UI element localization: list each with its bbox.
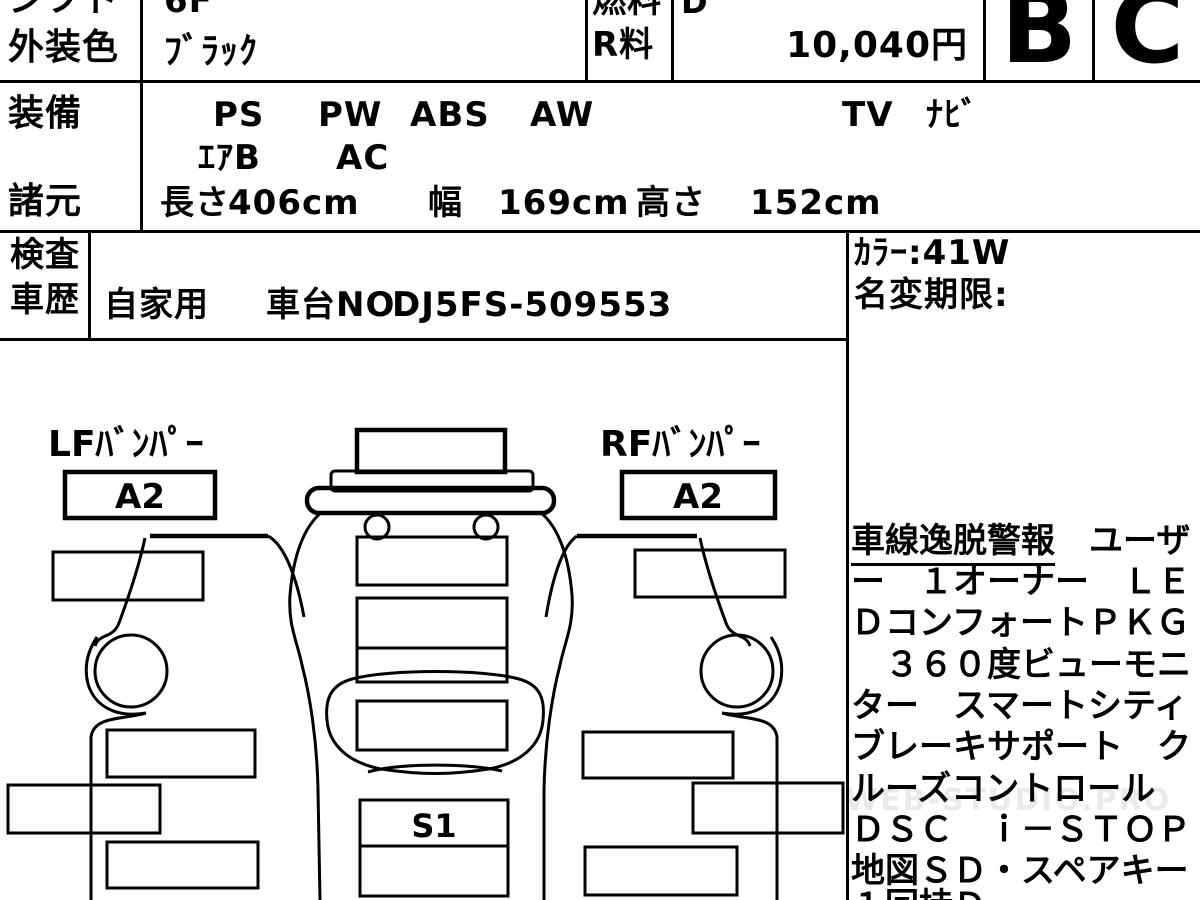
auction-sheet: WEB-STUDIO.PRO シフト 6F 外装色 ﾌﾞﾗｯｸ 燃料 D R料 … (0, 0, 1200, 900)
sill-code: S1 (411, 807, 456, 845)
right-mirror (474, 515, 498, 539)
rf-bumper-code: A2 (673, 477, 723, 517)
left-mirror (365, 515, 389, 539)
rf-bumper-label: RFﾊﾞﾝﾊﾟｰ (600, 423, 760, 465)
right-side-view (546, 536, 843, 900)
lf-bumper-label: LFﾊﾞﾝﾊﾟｰ (48, 423, 204, 465)
damage-diagram: LFﾊﾞﾝﾊﾟｰ A2 RFﾊﾞﾝﾊﾟｰ A2 S1 (0, 0, 1200, 900)
lf-bumper-code: A2 (115, 477, 165, 517)
left-side-view (8, 536, 304, 900)
